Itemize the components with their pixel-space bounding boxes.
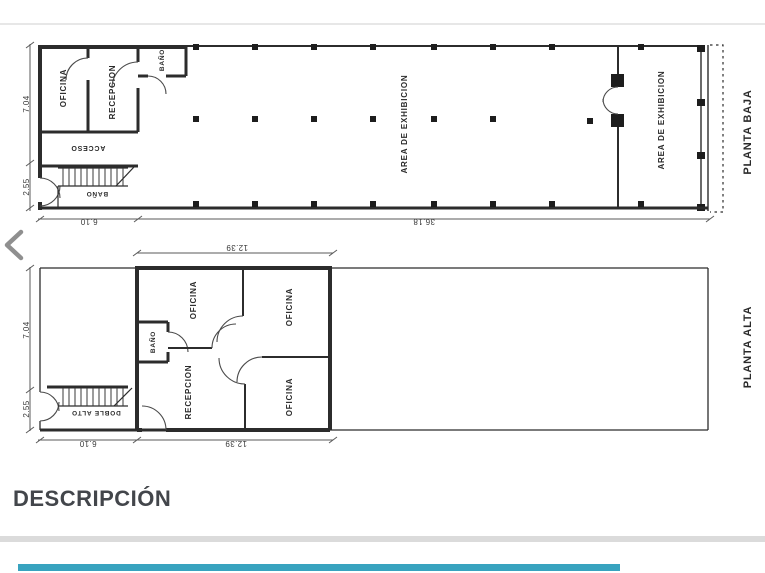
room-label-acceso: ACCESO [71, 144, 106, 151]
dim-255-baja: 2.55 [22, 178, 31, 195]
dim-704-baja: 7.04 [22, 95, 31, 112]
plan-title-baja: PLANTA BAJA [742, 89, 754, 174]
room-label-bano-alta: BAÑO [148, 331, 157, 353]
room-label-recepcion-alta: RECEPCION [184, 365, 193, 420]
section-divider [0, 536, 765, 542]
bottom-accent-bar [18, 564, 620, 571]
dim-610-baja: 6.10 [80, 217, 97, 226]
chevron-left-icon [2, 229, 28, 261]
room-label-exhibicion-2: AREA DE EXHIBICION [657, 70, 666, 169]
floorplan-gallery: OFICINA RECEPCION BAÑO ACCESO BAÑO AREA … [0, 0, 765, 478]
room-label-bano-bottom: BAÑO [86, 190, 108, 199]
stairs-baja [58, 168, 128, 186]
dim-610-alta: 6.10 [79, 439, 96, 448]
description-heading: DESCRIPCIÓN [13, 486, 171, 512]
plan-title-alta: PLANTA ALTA [742, 306, 754, 389]
plan-planta-baja: OFICINA RECEPCION BAÑO ACCESO BAÑO AREA … [22, 42, 754, 226]
dim-704-alta: 7.04 [22, 321, 31, 338]
dim-3618-baja: 36.18 [413, 217, 435, 226]
room-label-oficina: OFICINA [59, 69, 68, 108]
dim-1239-top: 12.39 [226, 243, 248, 252]
gallery-prev-button[interactable] [2, 229, 28, 261]
plan-planta-alta: OFICINA OFICINA OFICINA RECEPCION BAÑO D… [22, 243, 754, 448]
floorplan-image[interactable]: OFICINA RECEPCION BAÑO ACCESO BAÑO AREA … [0, 0, 765, 478]
room-label-oficina-bottom: OFICINA [285, 378, 294, 417]
room-label-recepcion: RECEPCION [108, 65, 117, 120]
room-label-doble-alto: DOBLE ALTO [71, 409, 120, 416]
room-label-oficina-top: OFICINA [285, 288, 294, 327]
dim-255-alta: 2.55 [22, 400, 31, 417]
dim-1239-bottom: 12.39 [225, 439, 247, 448]
room-label-exhibicion-1: AREA DE EXHIBICION [400, 74, 409, 173]
room-label-oficina-mid: OFICINA [189, 281, 198, 320]
room-label-bano-top: BAÑO [157, 49, 166, 71]
